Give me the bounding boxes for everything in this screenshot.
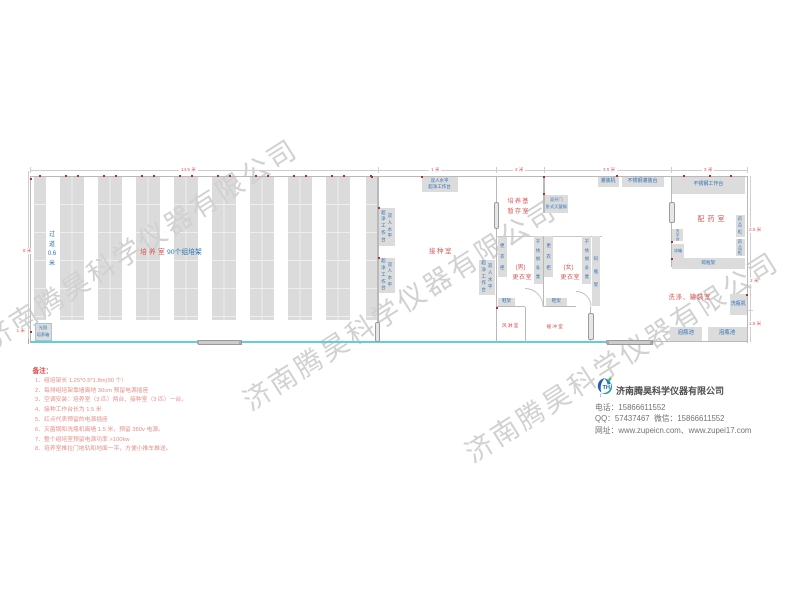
svg-text:TH: TH <box>602 384 610 390</box>
